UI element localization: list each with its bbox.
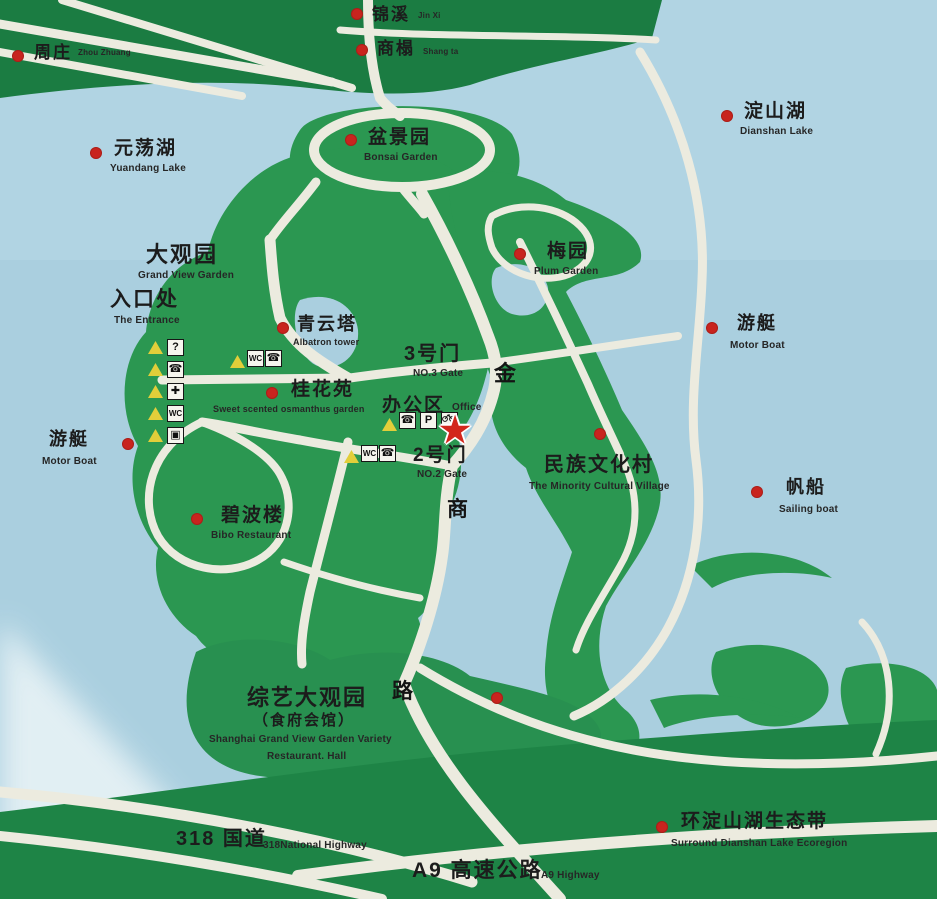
restroom-icon: WC xyxy=(167,405,184,422)
road-name-char-2: 路 xyxy=(392,681,413,702)
information-icon: ? xyxy=(167,339,184,356)
road-name-char-1: 商 xyxy=(447,499,468,520)
place-dot-sailing-boat xyxy=(751,486,763,498)
label-zh-no3-gate: 3号门 xyxy=(404,344,461,364)
label-en-no2-gate: NO.2 Gate xyxy=(417,470,467,480)
label-en-variety-hall: Shanghai Grand View Garden Variety xyxy=(209,735,392,745)
place-dot-motor-boat-east xyxy=(706,322,718,334)
label-en-osmanthus-garden: Sweet scented osmanthus garden xyxy=(213,405,365,414)
place-dot-minority-village xyxy=(594,428,606,440)
label-zh-variety-hall: 综艺大观园 xyxy=(247,687,367,709)
you-are-here-star-icon: ★ xyxy=(437,410,473,450)
label-en-bonsai-garden: Bonsai Garden xyxy=(364,153,438,163)
label-zh-motor-boat-east: 游艇 xyxy=(737,314,777,332)
place-dot-ecoregion xyxy=(656,821,668,833)
telephone-icon: ☎ xyxy=(167,361,184,378)
legend-triangle-icon xyxy=(148,363,163,376)
label-zh-the-entrance: 入口处 xyxy=(110,289,179,310)
label-zh-jinxi: 锦溪 xyxy=(372,6,410,23)
label-en-a9-highway: A9 Highway xyxy=(541,871,600,881)
label-zh-a9-highway: A9 高速公路 xyxy=(412,860,543,881)
label-zh-grand-view-garden: 大观园 xyxy=(146,244,218,266)
telephone-icon: ☎ xyxy=(399,412,416,429)
label-en-national-highway-318: 318National Highway xyxy=(263,841,367,851)
label-en-dianshan-lake: Dianshan Lake xyxy=(740,127,813,137)
map-annotations-layer: 周庄Zhou Zhuang锦溪Jin Xi商榻Shang ta淀山湖Diansh… xyxy=(0,0,937,899)
label-zh-sailing-boat: 帆船 xyxy=(786,478,826,496)
label-zh-plum-garden: 梅园 xyxy=(547,242,589,261)
label-zh-osmanthus-garden: 桂花苑 xyxy=(291,380,354,399)
label-en-shangta: Shang ta xyxy=(423,48,458,56)
restroom-icon: WC xyxy=(361,445,378,462)
label-en-jinxi: Jin Xi xyxy=(418,12,441,20)
legend-triangle-icon xyxy=(148,385,163,398)
place-dot-qingyun-tower xyxy=(277,322,289,334)
telephone-icon: ☎ xyxy=(265,350,282,367)
place-dot-variety-hall xyxy=(491,692,503,704)
triangle-icon-near-qingyun-tower xyxy=(230,355,245,368)
label-zh-motor-boat-west: 游艇 xyxy=(49,430,89,448)
label-en-ecoregion: Surround Dianshan Lake Ecoregion xyxy=(671,839,847,849)
triangle-icon-near-office xyxy=(382,418,397,431)
parking-icon: P xyxy=(420,412,437,429)
label-en-grand-view-garden: Grand View Garden xyxy=(138,271,234,281)
road-name-char-0: 金 xyxy=(494,363,516,385)
label-en-plum-garden: Plum Garden xyxy=(534,267,598,277)
label-zh-zhouzhuang: 周庄 xyxy=(34,44,72,61)
label-zh-yuandang-lake: 元荡湖 xyxy=(114,139,177,158)
label-zh2-variety-hall: （食府会馆） xyxy=(253,713,355,728)
label-en-sailing-boat: Sailing boat xyxy=(779,505,838,515)
triangle-icon-near-gate2 xyxy=(344,450,359,463)
label-en-no3-gate: NO.3 Gate xyxy=(413,369,463,379)
label-zh-qingyun-tower: 青云塔 xyxy=(297,315,357,333)
legend-triangle-icon xyxy=(148,429,163,442)
label-en2-variety-hall: Restaurant. Hall xyxy=(267,752,346,762)
label-zh-bonsai-garden: 盆景园 xyxy=(368,128,431,147)
place-dot-zhouzhuang xyxy=(12,50,24,62)
label-zh-national-highway-318: 318 国道 xyxy=(176,829,267,849)
park-map-sign: 周庄Zhou Zhuang锦溪Jin Xi商榻Shang ta淀山湖Diansh… xyxy=(0,0,937,899)
place-dot-bonsai-garden xyxy=(345,134,357,146)
label-en-minority-village: The Minority Cultural Village xyxy=(529,482,670,492)
place-dot-dianshan-lake xyxy=(721,110,733,122)
place-dot-motor-boat-west xyxy=(122,438,134,450)
label-en-motor-boat-east: Motor Boat xyxy=(730,341,785,351)
label-en-motor-boat-west: Motor Boat xyxy=(42,457,97,467)
place-dot-bibo-restaurant xyxy=(191,513,203,525)
legend-triangle-icon xyxy=(148,341,163,354)
label-en-zhouzhuang: Zhou Zhuang xyxy=(78,49,131,57)
place-dot-jinxi xyxy=(351,8,363,20)
label-en-bibo-restaurant: Bibo Restaurant xyxy=(211,531,291,541)
label-en-qingyun-tower: Albatron tower xyxy=(293,338,359,347)
label-zh-dianshan-lake: 淀山湖 xyxy=(744,102,807,121)
label-zh-shangta: 商榻 xyxy=(377,40,415,57)
first-aid-icon: ✚ xyxy=(167,383,184,400)
label-zh-bibo-restaurant: 碧波楼 xyxy=(221,506,284,525)
place-dot-shangta xyxy=(356,44,368,56)
shop-icon: ▣ xyxy=(167,427,184,444)
place-dot-osmanthus-garden xyxy=(266,387,278,399)
legend-triangle-icon xyxy=(148,407,163,420)
label-zh-minority-village: 民族文化村 xyxy=(544,455,654,475)
label-en-the-entrance: The Entrance xyxy=(114,316,180,326)
place-dot-yuandang-lake xyxy=(90,147,102,159)
label-en-yuandang-lake: Yuandang Lake xyxy=(110,164,186,174)
restroom-icon: WC xyxy=(247,350,264,367)
label-zh-ecoregion: 环淀山湖生态带 xyxy=(681,812,828,831)
telephone-icon: ☎ xyxy=(379,445,396,462)
place-dot-plum-garden xyxy=(514,248,526,260)
